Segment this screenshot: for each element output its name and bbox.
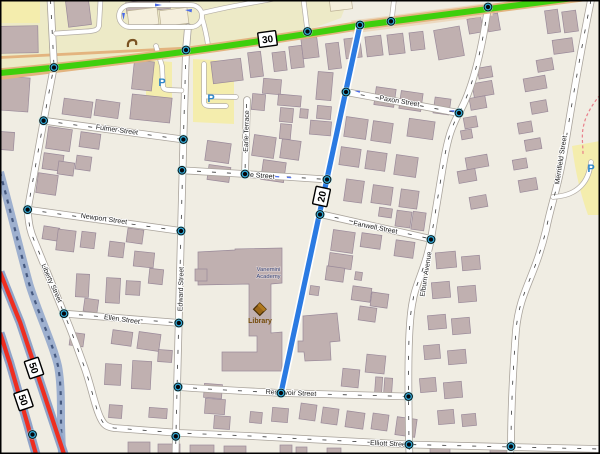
svg-text:P: P <box>207 93 214 105</box>
svg-text:Academy: Academy <box>256 274 280 280</box>
svg-text:Edward Street: Edward Street <box>177 267 185 312</box>
svg-text:Vanemini: Vanemini <box>257 267 281 273</box>
svg-text:P: P <box>158 77 165 89</box>
svg-text:Library: Library <box>248 318 272 325</box>
svg-text:Earle Terrace: Earle Terrace <box>243 110 251 152</box>
svg-text:P: P <box>587 163 594 175</box>
svg-text:30: 30 <box>261 34 274 46</box>
